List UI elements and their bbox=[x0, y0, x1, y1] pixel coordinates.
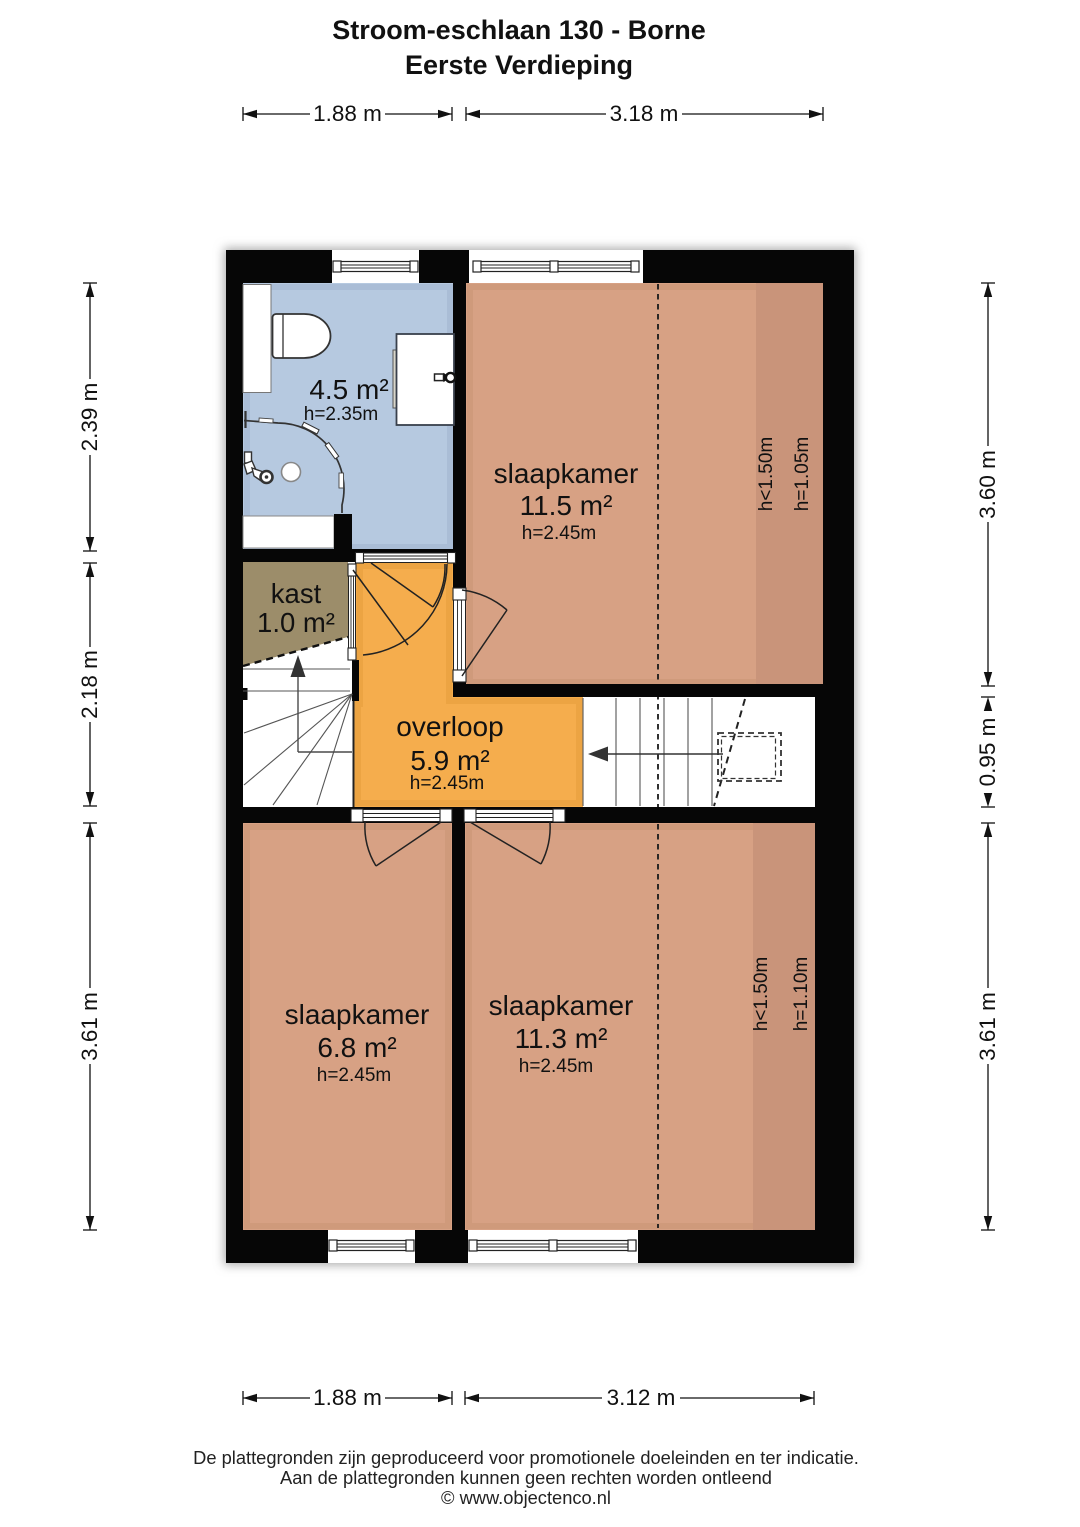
svg-text:h=2.45m: h=2.45m bbox=[317, 1065, 391, 1086]
svg-text:1.88 m: 1.88 m bbox=[313, 1385, 382, 1410]
svg-text:De plattegronden zijn geproduc: De plattegronden zijn geproduceerd voor … bbox=[193, 1447, 859, 1468]
svg-text:h=1.10m: h=1.10m bbox=[791, 957, 812, 1031]
svg-text:5.9 m²: 5.9 m² bbox=[410, 745, 489, 776]
svg-text:3.12 m: 3.12 m bbox=[607, 1385, 676, 1410]
svg-text:2.18 m: 2.18 m bbox=[77, 650, 102, 719]
svg-text:slaapkamer: slaapkamer bbox=[489, 990, 634, 1021]
svg-text:h=2.35m: h=2.35m bbox=[304, 404, 378, 425]
svg-text:3.18 m: 3.18 m bbox=[610, 101, 679, 126]
svg-text:© www.objectenco.nl: © www.objectenco.nl bbox=[441, 1487, 611, 1508]
svg-text:h<1.50m: h<1.50m bbox=[756, 437, 777, 511]
svg-text:3.60 m: 3.60 m bbox=[975, 450, 1000, 519]
svg-text:h=2.45m: h=2.45m bbox=[522, 523, 596, 544]
svg-text:3.61 m: 3.61 m bbox=[77, 992, 102, 1061]
svg-text:2.39 m: 2.39 m bbox=[77, 383, 102, 452]
svg-text:kast: kast bbox=[271, 578, 322, 609]
svg-text:slaapkamer: slaapkamer bbox=[285, 999, 430, 1030]
svg-text:0.95 m: 0.95 m bbox=[975, 718, 1000, 787]
svg-text:slaapkamer: slaapkamer bbox=[494, 458, 639, 489]
svg-text:h=2.45m: h=2.45m bbox=[519, 1056, 593, 1077]
svg-text:h=2.45m: h=2.45m bbox=[410, 773, 484, 794]
svg-text:Eerste Verdieping: Eerste Verdieping bbox=[405, 50, 633, 80]
svg-text:1.0 m²: 1.0 m² bbox=[257, 607, 335, 638]
svg-text:h<1.50m: h<1.50m bbox=[751, 957, 772, 1031]
svg-text:3.61 m: 3.61 m bbox=[975, 992, 1000, 1061]
svg-text:4.5 m²: 4.5 m² bbox=[309, 374, 388, 405]
svg-text:Stroom-eschlaan 130 - Borne: Stroom-eschlaan 130 - Borne bbox=[332, 15, 706, 45]
svg-text:h=1.05m: h=1.05m bbox=[792, 437, 813, 511]
svg-text:1.88 m: 1.88 m bbox=[313, 101, 382, 126]
svg-text:Aan de plattegronden kunnen ge: Aan de plattegronden kunnen geen rechten… bbox=[280, 1467, 772, 1488]
svg-text:overloop: overloop bbox=[396, 711, 503, 742]
svg-text:11.3 m²: 11.3 m² bbox=[515, 1023, 608, 1054]
svg-text:6.8 m²: 6.8 m² bbox=[317, 1032, 396, 1063]
svg-text:11.5 m²: 11.5 m² bbox=[520, 490, 613, 521]
